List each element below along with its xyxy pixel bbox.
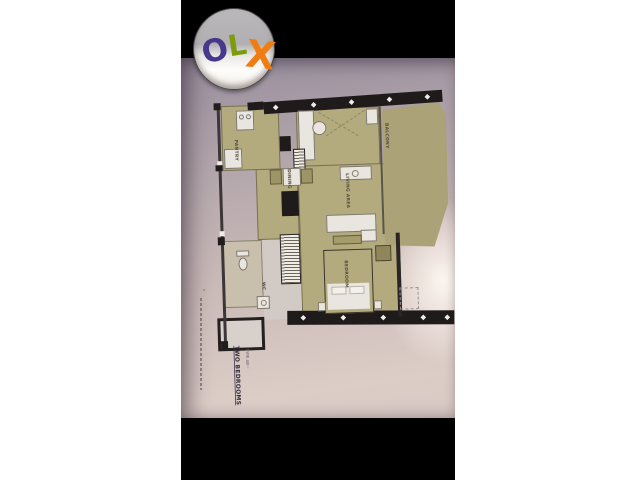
wall-post <box>218 237 225 245</box>
nightstand <box>318 302 326 311</box>
pillow <box>349 286 364 294</box>
wash-basin <box>257 296 270 309</box>
ac-unit-outline <box>399 287 419 310</box>
wall-gap <box>220 231 225 236</box>
plan-type-label: TYPE AB···· <box>245 348 250 368</box>
olx-letter-x: X <box>244 34 278 75</box>
dining-chair <box>270 169 282 184</box>
footnote-fine-print-illegible <box>200 298 202 390</box>
refrigerator <box>366 108 378 124</box>
room-label-dining: DINING <box>287 169 293 189</box>
room-label-living-area: LIVING AREA <box>345 173 351 208</box>
wardrobe <box>280 234 302 285</box>
room-label-balcony: BALCONY <box>384 123 390 149</box>
toilet-tank <box>236 250 249 256</box>
plan-type-suffix-illegible: ···· <box>245 365 250 368</box>
stove <box>236 110 255 131</box>
floor-plan-drawing: PANTRY DINING LIVING AREA BALCONY BEDROO… <box>190 84 455 406</box>
interior-wall-stub <box>281 191 299 217</box>
sofa-chaise <box>361 229 377 241</box>
olx-logo-watermark: O L X <box>193 8 275 90</box>
nightstand <box>374 300 382 309</box>
plan-title: TWO BEDROOMS <box>233 346 242 406</box>
room-label-pantry: PANTRY <box>234 140 240 161</box>
photo-letterbox-frame: O L X <box>181 0 455 480</box>
wall-post <box>215 165 222 171</box>
coffee-table <box>333 235 362 245</box>
wall-post <box>213 103 220 110</box>
balcony-floor <box>381 102 450 248</box>
interior-wall-stub <box>280 136 291 151</box>
dining-chair <box>301 168 313 183</box>
listing-photo[interactable]: PANTRY DINING LIVING AREA BALCONY BEDROO… <box>181 58 455 418</box>
wall-post <box>221 341 228 349</box>
room-label-bedroom: BEDROOM <box>344 260 350 288</box>
footnote-asterisk: * <box>201 289 206 291</box>
room-label-wc: WC <box>261 282 266 291</box>
dresser <box>375 245 391 261</box>
